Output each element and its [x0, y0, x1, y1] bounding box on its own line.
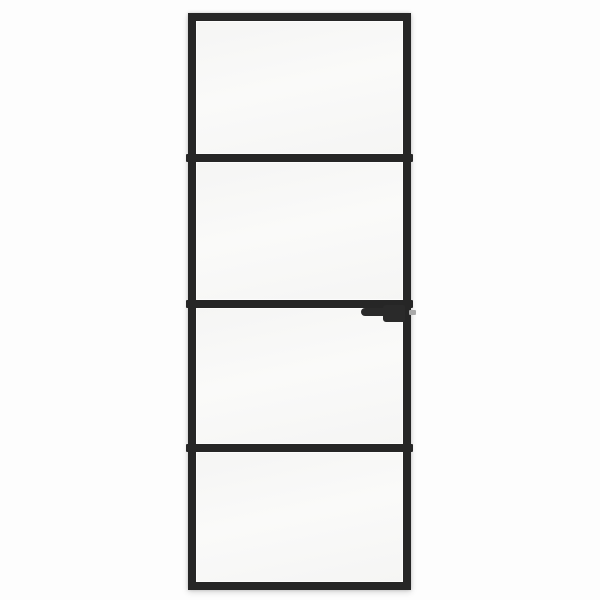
divider-bar-2	[186, 300, 413, 308]
glass-panel-2	[196, 162, 403, 300]
glass-panel-3	[196, 308, 403, 444]
divider-bar-1	[186, 154, 413, 162]
divider-bar-3	[186, 444, 413, 452]
door-handle-base	[383, 305, 405, 322]
door-handle-lever	[361, 308, 385, 316]
latch-pin	[409, 310, 416, 315]
product-photo	[0, 0, 600, 600]
glass-panel-1	[196, 21, 403, 154]
glass-panel-4	[196, 452, 403, 582]
glass-door	[188, 13, 411, 590]
